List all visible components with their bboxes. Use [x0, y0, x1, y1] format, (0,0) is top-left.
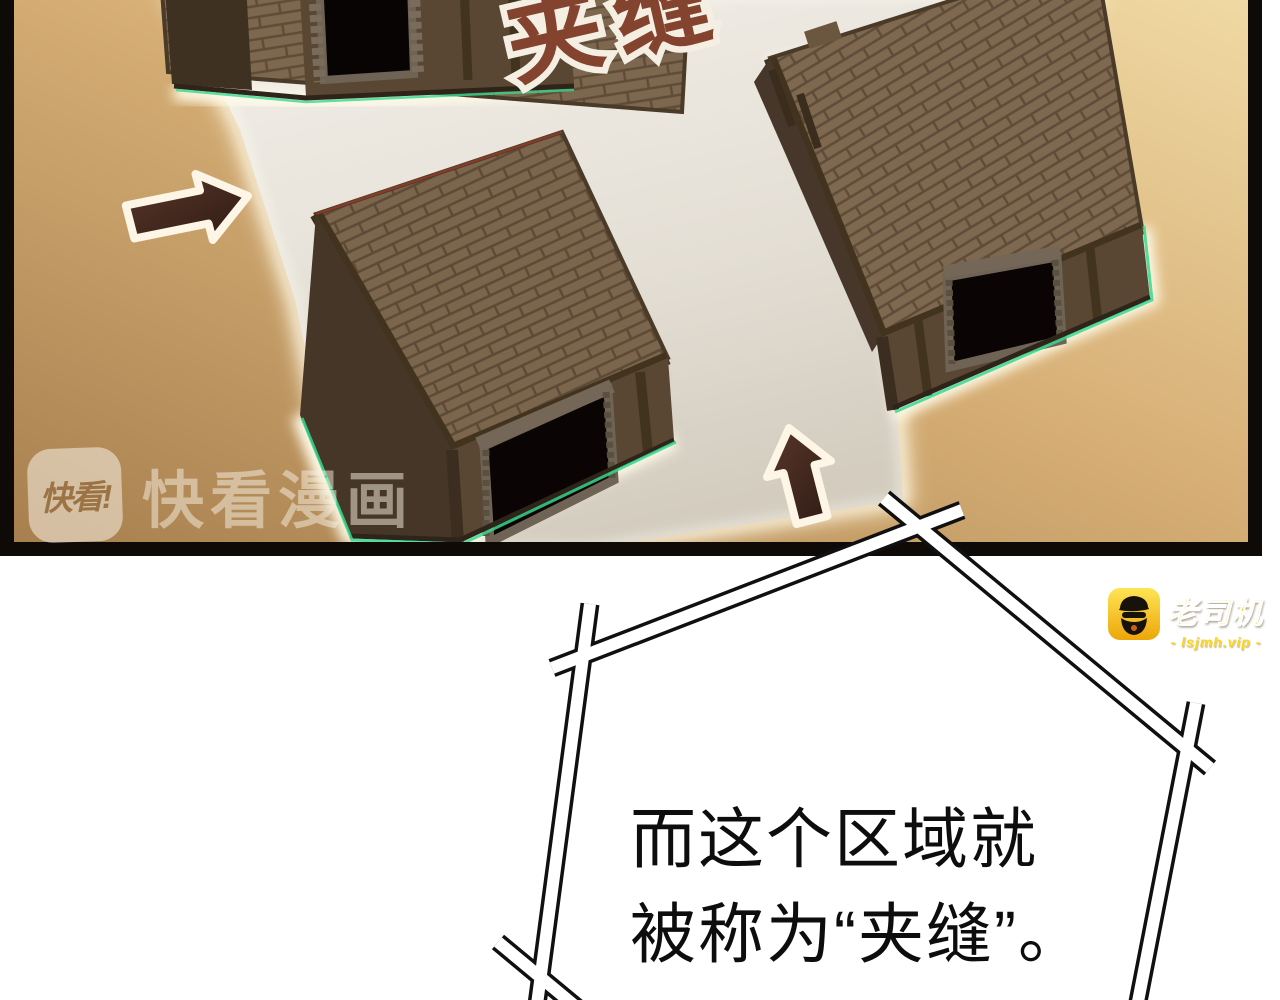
narration-line-1: 而这个区域就: [630, 792, 1086, 887]
narration-line-2: 被称为“夹缝”。: [630, 887, 1086, 982]
site-badge[interactable]: 老司机 - lsjmh.vip -: [1108, 588, 1264, 650]
panel-artwork: 夹缝: [14, 0, 1248, 548]
narration-text: 而这个区域就 被称为“夹缝”。: [630, 792, 1086, 982]
comic-page: 夹缝 快看! 快看漫画 而这个区域就 被称为“夹缝”。 老司机 - ls: [0, 0, 1280, 1000]
site-badge-url: - lsjmh.vip -: [1171, 634, 1262, 650]
driver-logo-icon: [1108, 588, 1160, 640]
site-badge-brand: 老司机: [1168, 588, 1264, 632]
